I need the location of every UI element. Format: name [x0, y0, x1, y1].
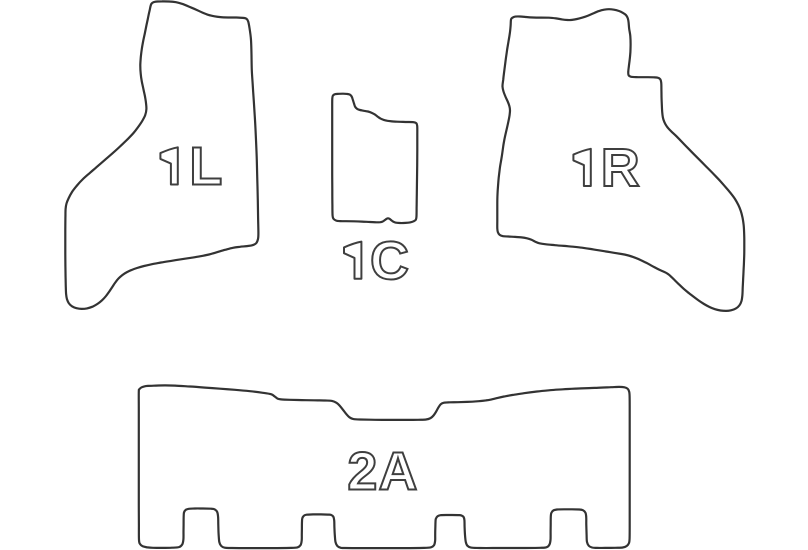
svg-text:R: R — [601, 138, 640, 198]
svg-text:2: 2 — [347, 441, 377, 501]
svg-text:L: L — [189, 137, 222, 197]
svg-text:C: C — [370, 231, 409, 291]
svg-text:A: A — [379, 441, 418, 501]
